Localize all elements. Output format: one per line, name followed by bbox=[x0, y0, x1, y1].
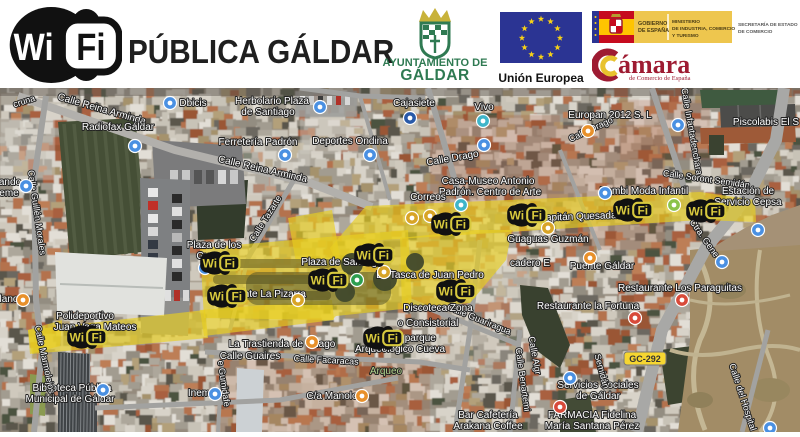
svg-text:ando: ando bbox=[0, 177, 22, 188]
svg-text:Fi: Fi bbox=[531, 208, 542, 222]
svg-text:Guaguas Guzmán: Guaguas Guzmán bbox=[507, 234, 588, 245]
svg-text:Calle Guaires: Calle Guaires bbox=[220, 351, 281, 362]
svg-text:Vivo: Vivo bbox=[474, 102, 494, 113]
svg-text:Radiofax Gáldar: Radiofax Gáldar bbox=[82, 122, 155, 133]
svg-text:Fi: Fi bbox=[378, 248, 389, 262]
svg-text:GC-292: GC-292 bbox=[629, 354, 661, 364]
svg-text:Wi: Wi bbox=[689, 204, 704, 218]
svg-text:DE ESPAÑA: DE ESPAÑA bbox=[638, 27, 669, 34]
svg-text:de Santiago: de Santiago bbox=[241, 107, 295, 118]
svg-text:Fi: Fi bbox=[455, 217, 466, 231]
svg-text:Herbolario Plaza: Herbolario Plaza bbox=[235, 96, 309, 107]
svg-text:GOBIERNO: GOBIERNO bbox=[638, 21, 667, 27]
svg-text:Wi: Wi bbox=[434, 217, 449, 231]
svg-text:María Santana Pérez: María Santana Pérez bbox=[545, 421, 640, 432]
svg-text:Wi: Wi bbox=[70, 330, 85, 344]
svg-text:Bar Cafetería: Bar Cafetería bbox=[458, 410, 518, 421]
svg-text:Piscolabis El S: Piscolabis El S bbox=[733, 117, 799, 128]
svg-text:Wi: Wi bbox=[357, 248, 372, 262]
svg-text:Restaurante la Fortuna: Restaurante la Fortuna bbox=[537, 301, 640, 312]
svg-text:DE INDUSTRIA, COMERCIO: DE INDUSTRIA, COMERCIO bbox=[672, 26, 735, 32]
svg-text:Wi: Wi bbox=[439, 284, 454, 298]
svg-text:Arakana Coffee: Arakana Coffee bbox=[453, 421, 523, 432]
svg-text:Cajasiete: Cajasiete bbox=[393, 98, 435, 109]
svg-text:La Trastienda de Chago: La Trastienda de Chago bbox=[229, 339, 336, 350]
svg-text:Plaza de los: Plaza de los bbox=[187, 240, 241, 251]
svg-text:Dbicis: Dbicis bbox=[179, 98, 206, 109]
svg-text:Discoteca Zona: Discoteca Zona bbox=[403, 303, 473, 314]
svg-text:Correos: Correos bbox=[410, 192, 446, 203]
svg-text:Fi: Fi bbox=[387, 331, 398, 345]
svg-text:Restaurante Los Paraguitas: Restaurante Los Paraguitas bbox=[618, 283, 742, 294]
svg-text:DE COMERCIO: DE COMERCIO bbox=[738, 29, 773, 35]
svg-text:Wi: Wi bbox=[14, 26, 54, 69]
svg-text:Padrón. Centro de Arte: Padrón. Centro de Arte bbox=[439, 187, 542, 198]
svg-text:o Consistorial: o Consistorial bbox=[398, 318, 459, 329]
svg-text:SECRETARÍA DE ESTADO: SECRETARÍA DE ESTADO bbox=[738, 20, 798, 28]
svg-text:Y TURISMO: Y TURISMO bbox=[672, 33, 699, 39]
svg-text:Fi: Fi bbox=[76, 26, 105, 69]
svg-text:C/a Manolo: C/a Manolo bbox=[306, 391, 358, 402]
svg-text:Wi: Wi bbox=[510, 208, 525, 222]
svg-text:Fi: Fi bbox=[231, 289, 242, 303]
svg-text:Fi: Fi bbox=[460, 284, 471, 298]
svg-text:Wi: Wi bbox=[616, 203, 631, 217]
svg-text:Fi: Fi bbox=[332, 273, 343, 287]
svg-text:de Comercio de España: de Comercio de España bbox=[629, 75, 691, 82]
svg-text:Fi: Fi bbox=[710, 204, 721, 218]
svg-text:Inem: Inem bbox=[188, 388, 210, 399]
svg-text:Ferretería Padrón: Ferretería Padrón bbox=[219, 137, 298, 148]
svg-text:Fi: Fi bbox=[224, 256, 235, 270]
svg-text:de Gáldar: de Gáldar bbox=[576, 391, 621, 402]
svg-text:GÁLDAR: GÁLDAR bbox=[400, 67, 469, 84]
svg-text:Puente Gáldar: Puente Gáldar bbox=[570, 261, 635, 272]
svg-text:Arqueo: Arqueo bbox=[370, 366, 403, 377]
svg-text:Wi: Wi bbox=[311, 273, 326, 287]
svg-text:Casa-Museo Antonio: Casa-Museo Antonio bbox=[442, 176, 535, 187]
svg-text:La Tasca de Juan Pedro: La Tasca de Juan Pedro bbox=[376, 270, 484, 281]
svg-text:MINISTERIO: MINISTERIO bbox=[672, 19, 700, 25]
svg-text:Deportes Ondina: Deportes Ondina bbox=[312, 136, 388, 147]
svg-text:Wi: Wi bbox=[366, 331, 381, 345]
svg-text:Wi: Wi bbox=[210, 289, 225, 303]
svg-text:Polideportivo: Polideportivo bbox=[56, 311, 114, 322]
svg-text:eme: eme bbox=[0, 188, 19, 199]
svg-text:Fi: Fi bbox=[637, 203, 648, 217]
svg-text:cadero E: cadero E bbox=[510, 258, 550, 269]
svg-text:Fi: Fi bbox=[91, 330, 102, 344]
svg-text:Estación de: Estación de bbox=[722, 186, 775, 197]
svg-text:Wi: Wi bbox=[203, 256, 218, 270]
svg-text:Bambi Moda Infantil: Bambi Moda Infantil bbox=[600, 186, 688, 197]
